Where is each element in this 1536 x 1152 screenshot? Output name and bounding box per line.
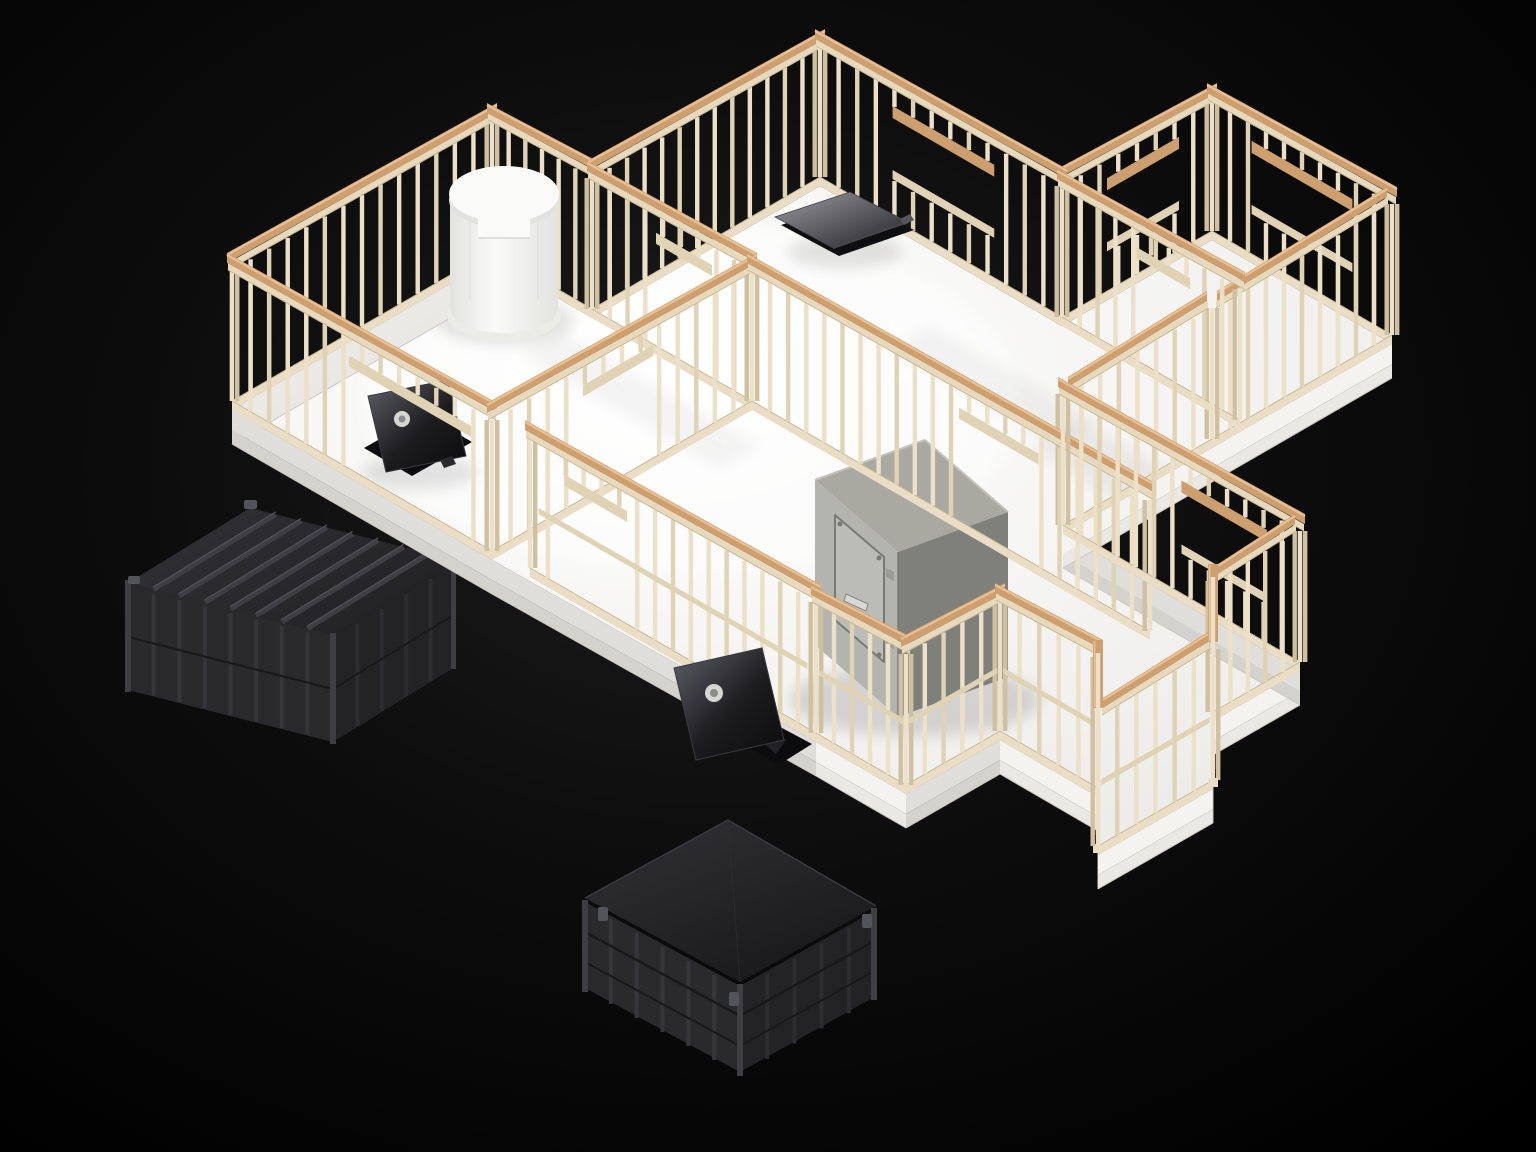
lifting-lug [598,907,608,921]
isometric-house-framing-scene: 3D isometric render — wood-framed house … [0,0,1536,1152]
render-canvas: 3D isometric render — wood-framed house … [0,0,1536,1152]
lifting-lug [729,992,739,1006]
lifting-lug [244,500,257,509]
lifting-lug [128,576,140,584]
lifting-lug [862,914,872,928]
tank-notch [478,219,530,238]
water-tank: White cylindrical tank [447,166,561,341]
